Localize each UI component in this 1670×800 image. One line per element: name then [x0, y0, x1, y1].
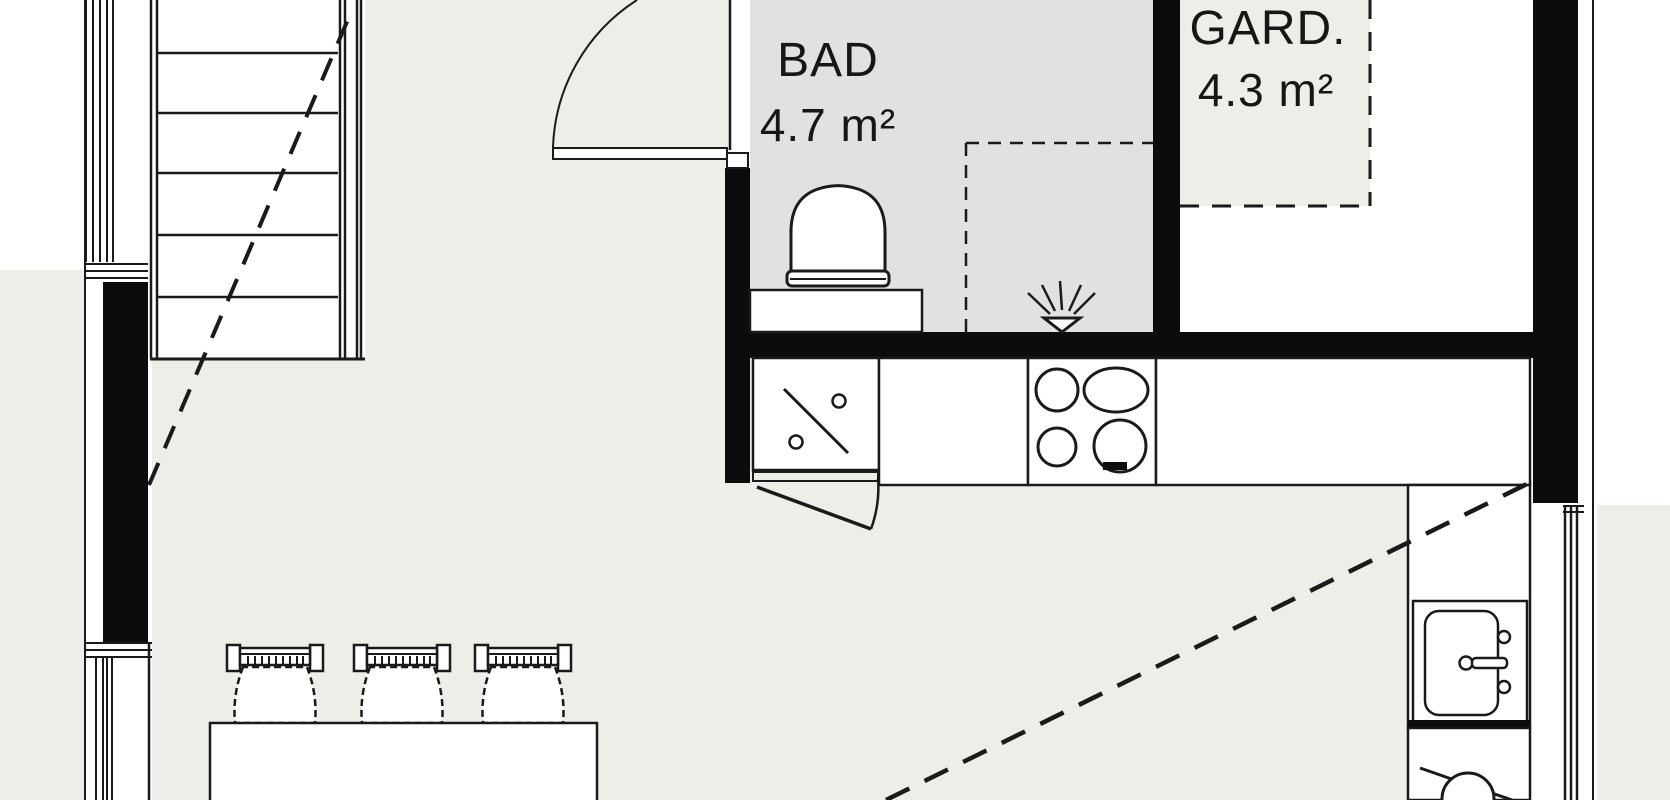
chair-1 — [227, 645, 323, 723]
vanity-counter — [750, 290, 922, 332]
wall-kitchen-horizontal — [725, 332, 1533, 358]
floor-plan-page: BAD 4.7 m² GARD. 4.3 m² — [0, 0, 1670, 800]
kitchen-counter-top-run — [753, 358, 1530, 485]
wall-left — [103, 282, 148, 642]
counter-cell-sink-unit — [753, 358, 879, 470]
wall-right — [1533, 0, 1578, 503]
wardrobe-area: 4.3 m² — [1198, 64, 1334, 116]
cooktop-control-mark — [1103, 462, 1127, 470]
faucet-icon — [1472, 658, 1507, 668]
bathroom-area: 4.7 m² — [760, 99, 896, 151]
floor-plan-drawing: BAD 4.7 m² GARD. 4.3 m² — [0, 0, 1670, 800]
chair-2 — [354, 645, 450, 723]
wall-bathroom-left — [725, 168, 750, 483]
toilet — [787, 186, 889, 286]
outside-right-ground — [1597, 505, 1670, 800]
dining-chairs — [227, 645, 571, 723]
kitchen-sink-icon — [1425, 611, 1510, 715]
wardrobe-label: GARD. — [1189, 2, 1346, 55]
outside-left-ground — [0, 270, 86, 800]
bathroom-doorway-gap — [730, 0, 750, 168]
dining-table — [210, 723, 597, 800]
bathroom-label: BAD — [777, 34, 879, 87]
chair-3 — [475, 645, 571, 723]
door-hinge-block — [727, 153, 748, 168]
door-leaf — [553, 148, 727, 159]
counter-cell-corner — [1156, 358, 1530, 485]
wall-bath-wardrobe — [1153, 0, 1180, 332]
counter-cell-empty — [879, 358, 1028, 485]
